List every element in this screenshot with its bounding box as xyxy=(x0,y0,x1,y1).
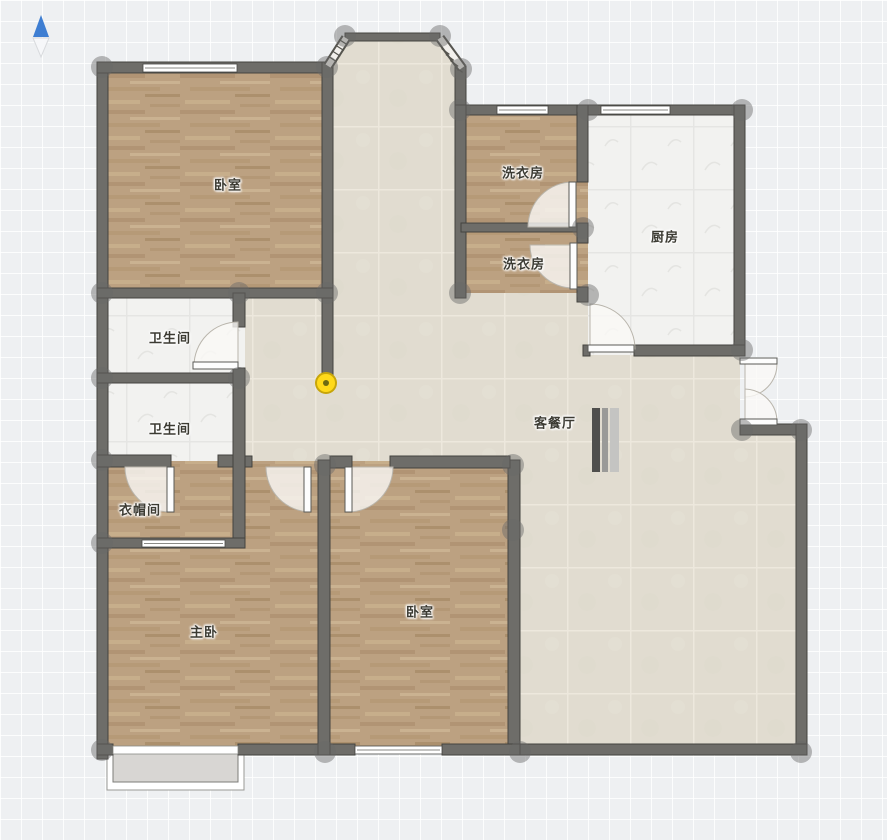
wall[interactable] xyxy=(634,345,745,356)
wall-handle[interactable] xyxy=(316,56,338,78)
floor-tile-area[interactable] xyxy=(327,62,461,298)
room-label-bath-upper[interactable]: 卫生间 xyxy=(149,328,191,347)
wall[interactable] xyxy=(390,456,510,468)
window[interactable] xyxy=(113,746,238,754)
selected-point-center xyxy=(323,380,329,386)
door-leaf[interactable] xyxy=(193,362,238,369)
room-label-living-dining[interactable]: 客餐厅 xyxy=(534,413,576,432)
radiator[interactable] xyxy=(602,408,608,472)
wall-handle[interactable] xyxy=(790,741,812,763)
room-label-kitchen[interactable]: 厨房 xyxy=(651,227,679,246)
balcony-window-slab xyxy=(113,753,238,782)
wall-handle[interactable] xyxy=(502,519,524,541)
wall-handle[interactable] xyxy=(572,217,594,239)
wall[interactable] xyxy=(97,288,333,298)
door-leaf[interactable] xyxy=(570,243,577,289)
wall-handle[interactable] xyxy=(429,25,451,47)
wall[interactable] xyxy=(796,424,807,755)
door-leaf[interactable] xyxy=(167,467,174,512)
wall[interactable] xyxy=(238,744,355,755)
wall-handle[interactable] xyxy=(577,284,599,306)
wall-handle[interactable] xyxy=(502,454,524,476)
wall[interactable] xyxy=(455,105,466,298)
wall-handle[interactable] xyxy=(509,741,531,763)
south-arrow-icon xyxy=(33,38,49,57)
wall[interactable] xyxy=(442,744,520,755)
room-label-master-bedroom[interactable]: 主卧 xyxy=(190,622,218,641)
wall-handle[interactable] xyxy=(731,419,753,441)
door-leaf[interactable] xyxy=(345,467,352,512)
room-label-laundry-upper[interactable]: 洗衣房 xyxy=(502,163,544,182)
wall-handle[interactable] xyxy=(790,419,812,441)
wall-handle[interactable] xyxy=(91,532,113,554)
door-swing xyxy=(745,389,777,422)
floorplan-canvas[interactable]: 卧室 洗衣房 洗衣房 厨房 卫生间 卫生间 客餐厅 衣帽间 主卧 卧室 xyxy=(0,0,887,840)
wall-handle[interactable] xyxy=(314,741,336,763)
room-label-laundry-lower[interactable]: 洗衣房 xyxy=(503,254,545,273)
wall-handle[interactable] xyxy=(314,454,336,476)
wall[interactable] xyxy=(510,744,807,755)
floorplan-drawing xyxy=(0,0,887,840)
wall[interactable] xyxy=(508,460,520,755)
door-leaf[interactable] xyxy=(304,467,311,512)
wall[interactable] xyxy=(233,368,245,545)
room-label-cloakroom[interactable]: 衣帽间 xyxy=(119,500,161,519)
wall-handle[interactable] xyxy=(91,739,113,761)
door-leaf[interactable] xyxy=(569,182,576,227)
wall-handle[interactable] xyxy=(449,99,471,121)
wall-handle[interactable] xyxy=(91,56,113,78)
wall[interactable] xyxy=(322,62,333,383)
wall-handle[interactable] xyxy=(91,282,113,304)
wall-handle[interactable] xyxy=(450,58,472,80)
wall[interactable] xyxy=(734,105,745,355)
radiator[interactable] xyxy=(610,408,619,472)
wall-handle[interactable] xyxy=(334,25,356,47)
wall[interactable] xyxy=(318,460,330,755)
wall-handle[interactable] xyxy=(316,282,338,304)
wall-handle[interactable] xyxy=(731,99,753,121)
room-label-bedroom-bottom[interactable]: 卧室 xyxy=(406,602,434,621)
room-label-bath-lower[interactable]: 卫生间 xyxy=(149,419,191,438)
wall-handle[interactable] xyxy=(449,282,471,304)
wall-handle[interactable] xyxy=(228,367,250,389)
wall[interactable] xyxy=(345,33,440,41)
wall-handle[interactable] xyxy=(91,449,113,471)
wall-handle[interactable] xyxy=(91,367,113,389)
radiator[interactable] xyxy=(592,408,600,472)
room-label-bedroom-top[interactable]: 卧室 xyxy=(214,175,242,194)
north-arrow-icon xyxy=(33,15,49,37)
wall-handle[interactable] xyxy=(731,339,753,361)
wall[interactable] xyxy=(97,373,245,383)
wall-handle[interactable] xyxy=(228,282,250,304)
wall[interactable] xyxy=(97,62,108,759)
door-leaf[interactable] xyxy=(588,345,634,352)
wall-handle[interactable] xyxy=(577,99,599,121)
